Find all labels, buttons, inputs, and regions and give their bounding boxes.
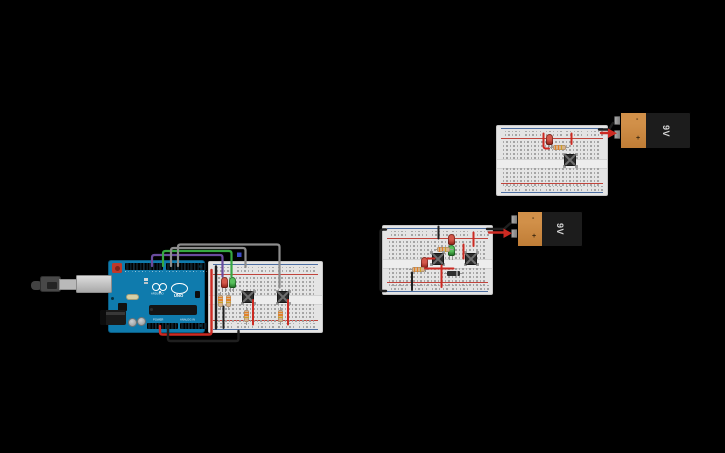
breadboard-hole[interactable] xyxy=(257,289,259,291)
breadboard-hole[interactable] xyxy=(435,288,437,290)
breadboard-hole[interactable] xyxy=(590,176,592,178)
breadboard-hole[interactable] xyxy=(459,249,461,251)
breadboard-hole[interactable] xyxy=(510,141,512,143)
breadboard-hole[interactable] xyxy=(313,267,315,269)
breadboard-hole[interactable] xyxy=(424,245,426,247)
breadboard-hole[interactable] xyxy=(473,249,475,251)
breadboard-hole[interactable] xyxy=(246,277,248,279)
breadboard-hole[interactable] xyxy=(299,326,301,328)
breadboard-hole[interactable] xyxy=(557,134,559,136)
breadboard-hole[interactable] xyxy=(403,241,405,243)
breadboard-hole[interactable] xyxy=(227,267,229,269)
breadboard-hole[interactable] xyxy=(555,168,557,170)
breadboard-hole[interactable] xyxy=(225,308,227,310)
breadboard-hole[interactable] xyxy=(396,241,398,243)
breadboard-hole[interactable] xyxy=(217,326,219,328)
breadboard-hole[interactable] xyxy=(548,153,550,155)
breadboard-hole[interactable] xyxy=(534,149,536,151)
breadboard-hole[interactable] xyxy=(253,320,255,322)
breadboard-hole[interactable] xyxy=(248,326,250,328)
breadboard-hole[interactable] xyxy=(469,268,471,270)
breadboard-hole[interactable] xyxy=(552,180,554,182)
breadboard-hole[interactable] xyxy=(406,276,408,278)
breadboard-hole[interactable] xyxy=(420,280,422,282)
breadboard-hole[interactable] xyxy=(260,320,262,322)
breadboard-hole[interactable] xyxy=(434,284,436,286)
breadboard-hole[interactable] xyxy=(569,149,571,151)
breadboard-hole[interactable] xyxy=(434,276,436,278)
breadboard-hole[interactable] xyxy=(411,234,413,236)
circuit-canvas[interactable]: ARDUINO UNO POWER ANALOG IN - + xyxy=(0,0,725,453)
breadboard-hole[interactable] xyxy=(434,268,436,270)
breadboard-hole[interactable] xyxy=(239,293,241,295)
breadboard-hole[interactable] xyxy=(455,276,457,278)
breadboard-hole[interactable] xyxy=(570,131,572,133)
breadboard-hole[interactable] xyxy=(536,189,538,191)
breadboard-hole[interactable] xyxy=(545,168,547,170)
breadboard-hole[interactable] xyxy=(229,312,231,314)
breadboard-hole[interactable] xyxy=(569,172,571,174)
breadboard-hole[interactable] xyxy=(313,289,315,291)
breadboard-hole[interactable] xyxy=(583,153,585,155)
breadboard-hole[interactable] xyxy=(309,285,311,287)
breadboard-hole[interactable] xyxy=(532,189,534,191)
breadboard-hole[interactable] xyxy=(445,276,447,278)
breadboard-hole[interactable] xyxy=(559,180,561,182)
breadboard-hole[interactable] xyxy=(459,268,461,270)
breadboard-hole[interactable] xyxy=(313,320,315,322)
breadboard-hole[interactable] xyxy=(292,320,294,322)
breadboard-hole[interactable] xyxy=(264,316,266,318)
breadboard-hole[interactable] xyxy=(426,231,428,233)
breadboard-hole[interactable] xyxy=(590,168,592,170)
breadboard-hole[interactable] xyxy=(562,168,564,170)
breadboard-hole[interactable] xyxy=(403,249,405,251)
breadboard-hole[interactable] xyxy=(545,184,547,186)
breadboard-hole[interactable] xyxy=(587,180,589,182)
breadboard-hole[interactable] xyxy=(562,180,564,182)
breadboard-hole[interactable] xyxy=(459,253,461,255)
breadboard-hole[interactable] xyxy=(594,180,596,182)
breadboard-hole[interactable] xyxy=(271,293,273,295)
breadboard-hole[interactable] xyxy=(532,186,534,188)
breadboard-hole[interactable] xyxy=(513,153,515,155)
breadboard-hole[interactable] xyxy=(285,285,287,287)
breadboard-hole[interactable] xyxy=(517,184,519,186)
breadboard-hole[interactable] xyxy=(431,276,433,278)
breadboard-hole[interactable] xyxy=(309,293,311,295)
breadboard-hole[interactable] xyxy=(236,281,238,283)
breadboard-hole[interactable] xyxy=(548,157,550,159)
breadboard-hole[interactable] xyxy=(555,184,557,186)
breadboard-hole[interactable] xyxy=(594,153,596,155)
breadboard-hole[interactable] xyxy=(540,134,542,136)
breadboard-hole[interactable] xyxy=(306,326,308,328)
breadboard-hole[interactable] xyxy=(469,241,471,243)
breadboard-hole[interactable] xyxy=(236,304,238,306)
breadboard-hole[interactable] xyxy=(577,134,579,136)
breadboard-hole[interactable] xyxy=(306,289,308,291)
breadboard-hole[interactable] xyxy=(417,284,419,286)
breadboard-hole[interactable] xyxy=(406,272,408,274)
breadboard-hole[interactable] xyxy=(487,285,489,287)
breadboard-hole[interactable] xyxy=(590,153,592,155)
breadboard-hole[interactable] xyxy=(253,316,255,318)
breadboard-hole[interactable] xyxy=(569,176,571,178)
breadboard-hole[interactable] xyxy=(483,253,485,255)
breadboard-hole[interactable] xyxy=(410,253,412,255)
breadboard-hole[interactable] xyxy=(538,141,540,143)
breadboard-hole[interactable] xyxy=(597,180,599,182)
breadboard-hole[interactable] xyxy=(456,288,458,290)
breadboard-hole[interactable] xyxy=(295,289,297,291)
breadboard-hole[interactable] xyxy=(531,180,533,182)
breadboard-hole[interactable] xyxy=(576,176,578,178)
breadboard-hole[interactable] xyxy=(462,268,464,270)
breadboard-hole[interactable] xyxy=(590,157,592,159)
breadboard-hole[interactable] xyxy=(583,168,585,170)
breadboard-hole[interactable] xyxy=(549,189,551,191)
breadboard-hole[interactable] xyxy=(455,280,457,282)
breadboard-hole[interactable] xyxy=(427,284,429,286)
breadboard-hole[interactable] xyxy=(220,267,222,269)
breadboard-hole[interactable] xyxy=(552,176,554,178)
breadboard-hole[interactable] xyxy=(258,323,260,325)
breadboard-hole[interactable] xyxy=(515,186,517,188)
breadboard-hole[interactable] xyxy=(302,285,304,287)
breadboard-hole[interactable] xyxy=(540,186,542,188)
breadboard-hole[interactable] xyxy=(282,270,284,272)
breadboard-hole[interactable] xyxy=(467,288,469,290)
breadboard-hole[interactable] xyxy=(236,308,238,310)
breadboard-hole[interactable] xyxy=(536,186,538,188)
breadboard-hole[interactable] xyxy=(313,316,315,318)
breadboard-hole[interactable] xyxy=(222,316,224,318)
breadboard-hole[interactable] xyxy=(299,320,301,322)
breadboard-hole[interactable] xyxy=(594,172,596,174)
breadboard-hole[interactable] xyxy=(303,270,305,272)
breadboard-hole[interactable] xyxy=(295,285,297,287)
breadboard-hole[interactable] xyxy=(274,308,276,310)
breadboard-hole[interactable] xyxy=(517,157,519,159)
breadboard-hole[interactable] xyxy=(232,308,234,310)
breadboard-hole[interactable] xyxy=(570,186,572,188)
breadboard-hole[interactable] xyxy=(293,267,295,269)
breadboard-hole[interactable] xyxy=(310,270,312,272)
breadboard-hole[interactable] xyxy=(503,157,505,159)
breadboard-hole[interactable] xyxy=(399,253,401,255)
breadboard-hole[interactable] xyxy=(302,281,304,283)
breadboard-hole[interactable] xyxy=(506,141,508,143)
breadboard-hole[interactable] xyxy=(293,270,295,272)
breadboard-hole[interactable] xyxy=(313,277,315,279)
breadboard-hole[interactable] xyxy=(285,312,287,314)
breadboard-hole[interactable] xyxy=(553,131,555,133)
breadboard-hole[interactable] xyxy=(215,289,217,291)
breadboard-hole[interactable] xyxy=(286,326,288,328)
breadboard-hole[interactable] xyxy=(546,131,548,133)
breadboard-hole[interactable] xyxy=(252,323,254,325)
breadboard-hole[interactable] xyxy=(555,157,557,159)
breadboard-hole[interactable] xyxy=(508,134,510,136)
breadboard-hole[interactable] xyxy=(524,145,526,147)
breadboard-hole[interactable] xyxy=(250,316,252,318)
breadboard-hole[interactable] xyxy=(250,304,252,306)
breadboard-hole[interactable] xyxy=(459,245,461,247)
breadboard-hole[interactable] xyxy=(288,277,290,279)
breadboard-hole[interactable] xyxy=(406,257,408,259)
breadboard-hole[interactable] xyxy=(506,157,508,159)
breadboard-hole[interactable] xyxy=(415,231,417,233)
breadboard-hole[interactable] xyxy=(477,288,479,290)
breadboard-hole[interactable] xyxy=(396,257,398,259)
breadboard-hole[interactable] xyxy=(513,157,515,159)
breadboard-hole[interactable] xyxy=(473,280,475,282)
breadboard-hole[interactable] xyxy=(598,189,600,191)
breadboard-hole[interactable] xyxy=(455,268,457,270)
breadboard-hole[interactable] xyxy=(239,312,241,314)
power-header[interactable] xyxy=(147,323,178,330)
breadboard-hole[interactable] xyxy=(513,176,515,178)
breadboard-hole[interactable] xyxy=(473,234,475,236)
breadboard-hole[interactable] xyxy=(555,176,557,178)
breadboard-hole[interactable] xyxy=(217,267,219,269)
breadboard-hole[interactable] xyxy=(574,189,576,191)
breadboard-hole[interactable] xyxy=(418,234,420,236)
breadboard-hole[interactable] xyxy=(260,277,262,279)
breadboard-hole[interactable] xyxy=(431,272,433,274)
breadboard-hole[interactable] xyxy=(215,308,217,310)
breadboard-hole[interactable] xyxy=(590,141,592,143)
breadboard-hole[interactable] xyxy=(594,189,596,191)
breadboard-hole[interactable] xyxy=(573,149,575,151)
breadboard-hole[interactable] xyxy=(236,312,238,314)
breadboard-hole[interactable] xyxy=(573,176,575,178)
breadboard-hole[interactable] xyxy=(566,184,568,186)
breadboard-hole[interactable] xyxy=(417,280,419,282)
breadboard-hole[interactable] xyxy=(295,312,297,314)
breadboard-hole[interactable] xyxy=(264,320,266,322)
breadboard-hole[interactable] xyxy=(427,245,429,247)
breadboard-hole[interactable] xyxy=(392,272,394,274)
breadboard-hole[interactable] xyxy=(272,323,274,325)
breadboard-hole[interactable] xyxy=(517,172,519,174)
breadboard-hole[interactable] xyxy=(260,281,262,283)
breadboard-hole[interactable] xyxy=(580,141,582,143)
breadboard-hole[interactable] xyxy=(460,231,462,233)
breadboard-hole[interactable] xyxy=(424,241,426,243)
breadboard-hole[interactable] xyxy=(424,276,426,278)
breadboard-hole[interactable] xyxy=(487,288,489,290)
breadboard-hole[interactable] xyxy=(431,245,433,247)
breadboard-hole[interactable] xyxy=(394,231,396,233)
breadboard-hole[interactable] xyxy=(559,176,561,178)
breadboard-hole[interactable] xyxy=(399,241,401,243)
breadboard-hole[interactable] xyxy=(483,268,485,270)
breadboard-hole[interactable] xyxy=(545,153,547,155)
breadboard-hole[interactable] xyxy=(306,316,308,318)
breadboard-hole[interactable] xyxy=(229,316,231,318)
breadboard-hole[interactable] xyxy=(476,284,478,286)
breadboard-hole[interactable] xyxy=(415,234,417,236)
breadboard-hole[interactable] xyxy=(469,245,471,247)
breadboard-hole[interactable] xyxy=(434,280,436,282)
breadboard-hole[interactable] xyxy=(399,268,401,270)
reset-button[interactable] xyxy=(112,263,122,273)
breadboard-hole[interactable] xyxy=(224,267,226,269)
breadboard-hole[interactable] xyxy=(601,186,603,188)
breadboard-hole[interactable] xyxy=(580,157,582,159)
breadboard-hole[interactable] xyxy=(581,131,583,133)
breadboard-hole[interactable] xyxy=(503,153,505,155)
breadboard-hole[interactable] xyxy=(534,184,536,186)
breadboard-hole[interactable] xyxy=(215,277,217,279)
breadboard-hole[interactable] xyxy=(473,245,475,247)
breadboard-hole[interactable] xyxy=(248,323,250,325)
breadboard-hole[interactable] xyxy=(239,277,241,279)
breadboard-hole[interactable] xyxy=(513,141,515,143)
breadboard-hole[interactable] xyxy=(553,189,555,191)
breadboard-hole[interactable] xyxy=(503,180,505,182)
breadboard-hole[interactable] xyxy=(548,168,550,170)
breadboard-hole[interactable] xyxy=(260,289,262,291)
breadboard-hole[interactable] xyxy=(231,326,233,328)
breadboard-hole[interactable] xyxy=(503,141,505,143)
breadboard-hole[interactable] xyxy=(445,284,447,286)
breadboard-hole[interactable] xyxy=(587,157,589,159)
usb-plug-body[interactable] xyxy=(40,276,61,292)
breadboard-hole[interactable] xyxy=(581,186,583,188)
breadboard-hole[interactable] xyxy=(271,308,273,310)
breadboard-hole[interactable] xyxy=(445,241,447,243)
breadboard-hole[interactable] xyxy=(406,280,408,282)
breadboard-hole[interactable] xyxy=(396,272,398,274)
breadboard-hole[interactable] xyxy=(410,257,412,259)
breadboard-hole[interactable] xyxy=(531,141,533,143)
breadboard-hole[interactable] xyxy=(513,184,515,186)
breadboard-hole[interactable] xyxy=(517,145,519,147)
breadboard-hole[interactable] xyxy=(538,145,540,147)
breadboard-hole[interactable] xyxy=(583,172,585,174)
breadboard-hole[interactable] xyxy=(293,326,295,328)
breadboard-hole[interactable] xyxy=(272,270,274,272)
breadboard-hole[interactable] xyxy=(261,326,263,328)
breadboard-hole[interactable] xyxy=(583,145,585,147)
breadboard-hole[interactable] xyxy=(302,289,304,291)
battery-9v[interactable]: - + 9V xyxy=(504,209,589,251)
breadboard-hole[interactable] xyxy=(566,176,568,178)
breadboard-hole[interactable] xyxy=(261,270,263,272)
breadboard-hole[interactable] xyxy=(431,284,433,286)
breadboard-hole[interactable] xyxy=(506,145,508,147)
breadboard-hole[interactable] xyxy=(538,168,540,170)
breadboard-hole[interactable] xyxy=(573,180,575,182)
breadboard-hole[interactable] xyxy=(534,145,536,147)
breadboard-hole[interactable] xyxy=(278,281,280,283)
breadboard-hole[interactable] xyxy=(538,184,540,186)
breadboard-hole[interactable] xyxy=(396,280,398,282)
breadboard-hole[interactable] xyxy=(417,272,419,274)
breadboard-hole[interactable] xyxy=(243,281,245,283)
breadboard-hole[interactable] xyxy=(302,312,304,314)
breadboard-hole[interactable] xyxy=(467,231,469,233)
breadboard-hole[interactable] xyxy=(289,326,291,328)
breadboard-hole[interactable] xyxy=(232,304,234,306)
breadboard-hole[interactable] xyxy=(285,316,287,318)
breadboard-hole[interactable] xyxy=(271,304,273,306)
breadboard-hole[interactable] xyxy=(560,186,562,188)
breadboard-hole[interactable] xyxy=(274,293,276,295)
breadboard-hole[interactable] xyxy=(237,326,239,328)
breadboard-hole[interactable] xyxy=(392,249,394,251)
breadboard-hole[interactable] xyxy=(463,288,465,290)
breadboard-hole[interactable] xyxy=(480,234,482,236)
breadboard-hole[interactable] xyxy=(548,172,550,174)
breadboard-hole[interactable] xyxy=(529,131,531,133)
breadboard-hole[interactable] xyxy=(510,149,512,151)
breadboard-hole[interactable] xyxy=(552,172,554,174)
breadboard-hole[interactable] xyxy=(577,131,579,133)
breadboard-hole[interactable] xyxy=(432,288,434,290)
breadboard-hole[interactable] xyxy=(246,304,248,306)
breadboard-hole[interactable] xyxy=(306,323,308,325)
breadboard-hole[interactable] xyxy=(519,131,521,133)
breadboard-hole[interactable] xyxy=(448,280,450,282)
breadboard-hole[interactable] xyxy=(432,234,434,236)
breadboard-hole[interactable] xyxy=(250,281,252,283)
breadboard-hole[interactable] xyxy=(443,288,445,290)
breadboard-hole[interactable] xyxy=(265,326,267,328)
breadboard-hole[interactable] xyxy=(306,308,308,310)
red-led[interactable] xyxy=(221,277,228,288)
breadboard-hole[interactable] xyxy=(532,134,534,136)
breadboard-hole[interactable] xyxy=(434,272,436,274)
breadboard-hole[interactable] xyxy=(517,180,519,182)
breadboard-hole[interactable] xyxy=(462,241,464,243)
breadboard-hole[interactable] xyxy=(587,189,589,191)
breadboard-hole[interactable] xyxy=(580,168,582,170)
breadboard-hole[interactable] xyxy=(466,284,468,286)
breadboard-hole[interactable] xyxy=(480,245,482,247)
breadboard-hole[interactable] xyxy=(506,149,508,151)
breadboard-hole[interactable] xyxy=(525,131,527,133)
breadboard-hole[interactable] xyxy=(295,281,297,283)
breadboard-hole[interactable] xyxy=(510,176,512,178)
breadboard-hole[interactable] xyxy=(587,134,589,136)
breadboard-hole[interactable] xyxy=(422,288,424,290)
breadboard-hole[interactable] xyxy=(306,281,308,283)
breadboard-hole[interactable] xyxy=(306,304,308,306)
breadboard-hole[interactable] xyxy=(576,157,578,159)
breadboard-hole[interactable] xyxy=(289,323,291,325)
breadboard-hole[interactable] xyxy=(560,189,562,191)
breadboard-hole[interactable] xyxy=(401,231,403,233)
breadboard-hole[interactable] xyxy=(473,288,475,290)
breadboard-hole[interactable] xyxy=(473,241,475,243)
breadboard-hole[interactable] xyxy=(525,186,527,188)
breadboard-hole[interactable] xyxy=(594,184,596,186)
breadboard-hole[interactable] xyxy=(446,231,448,233)
breadboard-hole[interactable] xyxy=(309,289,311,291)
breadboard-hole[interactable] xyxy=(443,285,445,287)
breadboard-hole[interactable] xyxy=(590,149,592,151)
breadboard-hole[interactable] xyxy=(503,149,505,151)
breadboard-hole[interactable] xyxy=(222,320,224,322)
breadboard-hole[interactable] xyxy=(531,176,533,178)
breadboard-hole[interactable] xyxy=(580,145,582,147)
breadboard-hole[interactable] xyxy=(225,316,227,318)
breadboard-hole[interactable] xyxy=(506,153,508,155)
